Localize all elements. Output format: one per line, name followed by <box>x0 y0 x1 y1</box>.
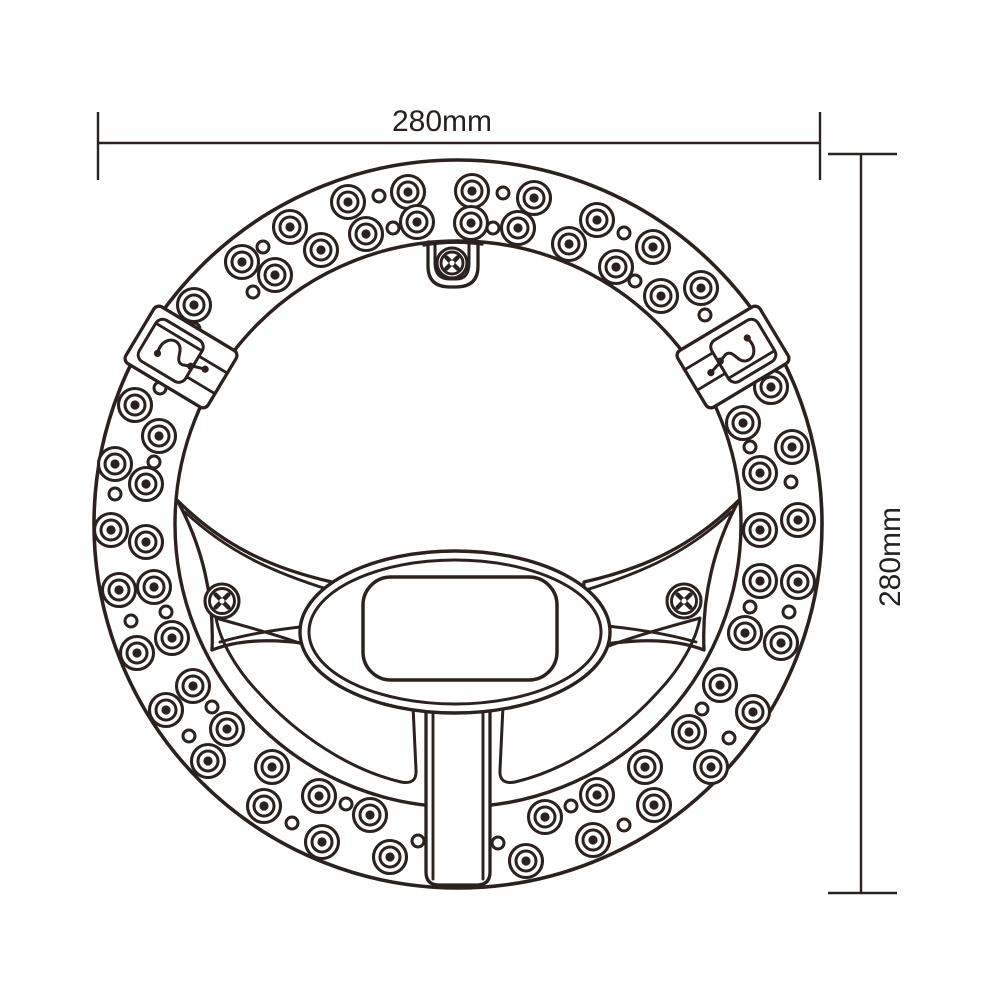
led-dot <box>793 515 802 524</box>
led-dot <box>189 300 198 309</box>
led-dot <box>130 400 139 409</box>
small-hole <box>387 222 399 234</box>
led-dot <box>640 762 649 771</box>
led-dot <box>317 837 326 846</box>
led-inner-row <box>673 716 706 749</box>
small-hole <box>497 187 509 199</box>
led-dot <box>222 724 231 733</box>
led-outer-row <box>150 694 183 727</box>
led-outer-row <box>456 175 489 208</box>
screw-center <box>681 598 686 603</box>
led-dot <box>592 215 601 224</box>
small-hole <box>618 227 630 239</box>
led-inner-row <box>645 280 678 313</box>
led-inner-row <box>305 234 338 267</box>
led-inner-row <box>581 779 614 812</box>
led-inner-row <box>259 259 292 292</box>
led-dot <box>793 577 802 586</box>
led-inner-row <box>156 622 189 655</box>
led-dot <box>285 222 294 231</box>
led-inner-row <box>143 420 176 453</box>
led-dot <box>776 638 785 647</box>
led-dot <box>114 585 123 594</box>
led-inner-row <box>177 670 210 703</box>
led-inner-row <box>130 526 163 559</box>
led-outer-row <box>99 448 132 481</box>
small-hole <box>109 488 121 500</box>
led-dot <box>267 762 276 771</box>
small-hole <box>696 703 708 715</box>
led-inner-row <box>704 669 737 702</box>
led-inner-row <box>130 468 163 501</box>
led-dot <box>592 790 601 799</box>
led-outer-row <box>374 841 407 874</box>
led-dot <box>696 283 705 292</box>
spring-mounting-clips <box>123 304 791 410</box>
small-hole <box>148 456 160 468</box>
led-outer-row <box>121 637 154 670</box>
led-inner-row <box>256 751 289 784</box>
led-outer-row <box>510 845 543 878</box>
led-dot <box>141 537 150 546</box>
width-dimension-label: 280mm <box>392 105 492 138</box>
led-inner-row <box>729 617 762 650</box>
led-outer-row <box>695 751 728 784</box>
led-dot <box>412 217 421 226</box>
led-outer-row <box>392 176 425 209</box>
small-hole <box>744 441 756 453</box>
led-dot <box>141 479 150 488</box>
led-dot <box>755 525 764 534</box>
led-dot <box>385 852 394 861</box>
led-dot <box>748 707 757 716</box>
led-inner-row <box>600 251 633 284</box>
led-dot <box>154 431 163 440</box>
led-dot <box>132 648 141 657</box>
led-inner-row <box>350 218 383 251</box>
led-outer-row <box>737 696 770 729</box>
small-hole <box>125 615 137 627</box>
led-dot <box>755 468 764 477</box>
led-inner-row <box>303 780 336 813</box>
stem <box>426 695 490 885</box>
led-inner-row <box>529 801 562 834</box>
screw-center <box>219 598 224 603</box>
small-hole <box>286 817 298 829</box>
small-hole <box>487 222 499 234</box>
small-hole <box>257 241 269 253</box>
small-hole <box>618 819 630 831</box>
led-dot <box>343 197 352 206</box>
led-outer-row <box>178 289 211 322</box>
small-hole <box>565 800 577 812</box>
led-dot <box>365 810 374 819</box>
small-hole <box>723 732 735 744</box>
small-hole <box>412 835 424 847</box>
led-dot <box>611 262 620 271</box>
led-dot <box>203 756 212 765</box>
led-inner-row <box>727 407 760 440</box>
led-dot <box>656 291 665 300</box>
led-dot <box>715 680 724 689</box>
led-inner-row <box>354 799 387 832</box>
led-dot <box>316 245 325 254</box>
led-dot <box>738 418 747 427</box>
small-hole <box>783 606 795 618</box>
led-outer-row <box>685 272 718 305</box>
led-outer-row <box>306 826 339 859</box>
led-outer-row <box>638 789 671 822</box>
small-hole <box>340 798 352 810</box>
led-dot <box>540 812 549 821</box>
led-outer-row <box>332 186 365 219</box>
led-dot <box>188 681 197 690</box>
led-outer-row <box>274 211 307 244</box>
small-hole <box>629 275 641 287</box>
led-dot <box>314 791 323 800</box>
driver-window <box>363 577 557 680</box>
led-inner-row <box>744 565 777 598</box>
led-outer-row <box>776 431 809 464</box>
led-inner-row <box>211 713 244 746</box>
led-inner-row <box>401 206 434 239</box>
led-outer-row <box>581 204 614 237</box>
led-inner-row <box>744 457 777 490</box>
led-dot <box>161 705 170 714</box>
led-dot <box>740 628 749 637</box>
left-arm-screw <box>205 584 239 618</box>
screw-center <box>449 260 454 265</box>
tab-screw <box>437 248 467 278</box>
led-dot <box>467 186 476 195</box>
led-dot <box>403 187 412 196</box>
led-dot <box>513 223 522 232</box>
led-outer-row <box>637 231 670 264</box>
led-dot <box>529 193 538 202</box>
center-bracket <box>177 500 739 885</box>
led-outer-row <box>95 514 128 547</box>
small-hole <box>160 606 172 618</box>
led-dot <box>167 633 176 642</box>
led-outer-row <box>782 504 815 537</box>
screw-tab <box>424 242 482 287</box>
led-outer-row <box>192 745 225 778</box>
small-hole <box>699 309 711 321</box>
led-dot <box>110 459 119 468</box>
small-hole <box>373 190 385 202</box>
led-dot <box>361 229 370 238</box>
led-inner-row <box>629 751 662 784</box>
led-dot <box>237 257 246 266</box>
led-dot <box>787 442 796 451</box>
led-outer-row <box>577 824 610 857</box>
led-module-dimension-drawing: 280mm 280mm <box>0 0 1000 1000</box>
led-dot <box>706 762 715 771</box>
led-outer-row <box>782 566 815 599</box>
led-inner-row <box>502 212 535 245</box>
led-dot <box>684 727 693 736</box>
led-dot <box>766 382 775 391</box>
led-dot <box>149 582 158 591</box>
led-dot <box>755 576 764 585</box>
small-hole <box>183 730 195 742</box>
technical-drawing-page: 280mm 280mm <box>0 0 1000 1000</box>
led-dot <box>648 242 657 251</box>
led-dot <box>564 239 573 248</box>
height-dimension-label: 280mm <box>874 507 907 607</box>
led-inner-row <box>744 514 777 547</box>
led-dot <box>466 218 475 227</box>
led-inner-row <box>138 571 171 604</box>
led-outer-row <box>103 574 136 607</box>
small-hole <box>247 286 259 298</box>
right-arm-screw <box>667 584 701 618</box>
small-hole <box>744 601 756 613</box>
small-hole <box>206 701 218 713</box>
led-outer-row <box>226 246 259 279</box>
led-dot <box>106 525 115 534</box>
led-dot <box>521 856 530 865</box>
led-dot <box>270 270 279 279</box>
led-outer-row <box>119 389 152 422</box>
led-dot <box>259 801 268 810</box>
led-outer-row <box>518 182 551 215</box>
led-dot <box>649 800 658 809</box>
small-hole <box>492 837 504 849</box>
led-outer-row <box>248 790 281 823</box>
led-inner-row <box>553 228 586 261</box>
led-outer-row <box>765 627 798 660</box>
led-inner-row <box>455 207 488 240</box>
small-hole <box>785 476 797 488</box>
led-dot <box>588 835 597 844</box>
